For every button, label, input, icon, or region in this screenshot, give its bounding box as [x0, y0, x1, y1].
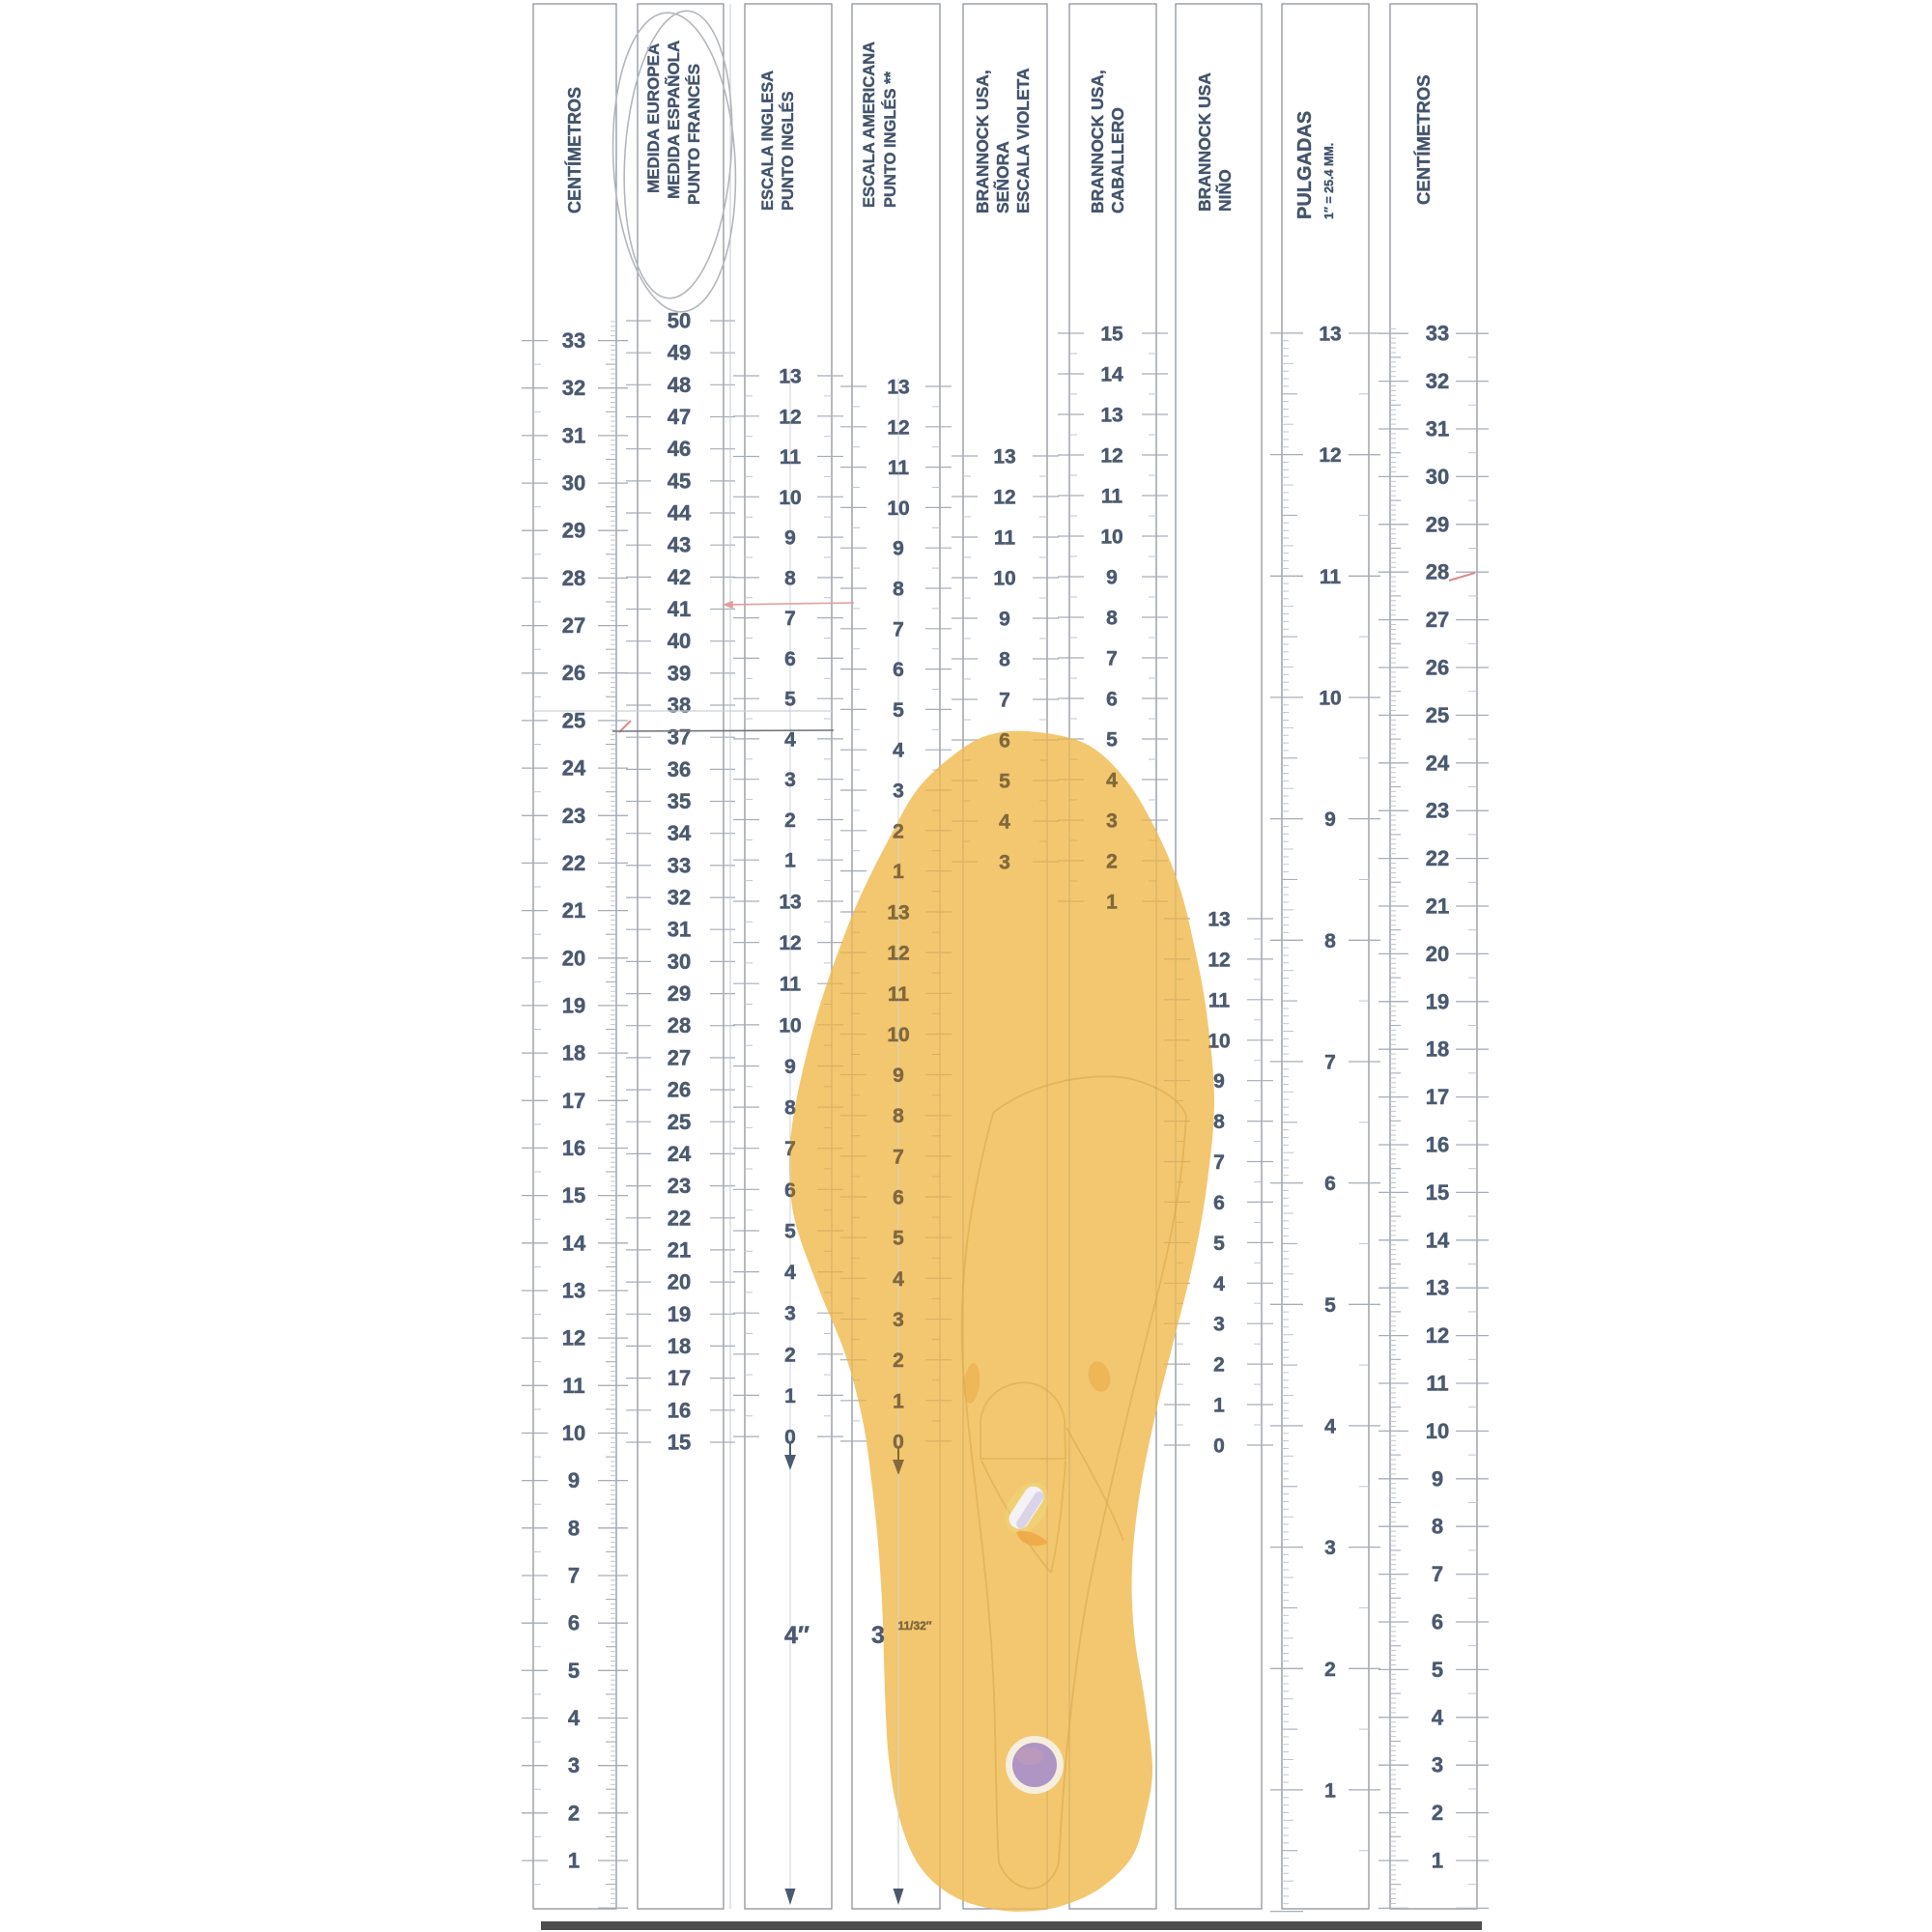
svg-text:31: 31: [1426, 417, 1449, 441]
svg-text:3: 3: [568, 1753, 580, 1777]
svg-text:3: 3: [1106, 810, 1118, 833]
svg-text:38: 38: [668, 694, 691, 718]
svg-text:NIÑO: NIÑO: [1214, 169, 1235, 212]
svg-text:25: 25: [562, 708, 585, 732]
svg-text:44: 44: [668, 501, 692, 526]
svg-text:12: 12: [887, 416, 909, 439]
svg-text:28: 28: [562, 566, 585, 590]
svg-text:ESCALA AMERICANA: ESCALA AMERICANA: [861, 42, 878, 208]
svg-text:32: 32: [1426, 369, 1449, 393]
svg-text:6: 6: [1324, 1173, 1336, 1195]
svg-text:16: 16: [668, 1398, 691, 1422]
svg-text:22: 22: [562, 851, 585, 875]
svg-text:20: 20: [562, 946, 585, 970]
svg-text:4: 4: [1432, 1705, 1444, 1729]
svg-text:7: 7: [1432, 1562, 1443, 1586]
svg-text:32: 32: [562, 376, 585, 400]
svg-text:8: 8: [1106, 608, 1118, 630]
svg-text:8: 8: [1432, 1515, 1443, 1539]
svg-text:13: 13: [779, 892, 801, 914]
svg-text:22: 22: [668, 1206, 691, 1230]
svg-text:4: 4: [784, 728, 796, 751]
svg-text:12: 12: [1319, 444, 1341, 467]
svg-text:4: 4: [1106, 770, 1118, 792]
svg-text:26: 26: [1426, 656, 1449, 680]
svg-text:6: 6: [893, 1187, 904, 1209]
svg-text:1: 1: [1432, 1849, 1443, 1873]
svg-text:30: 30: [1426, 465, 1449, 489]
svg-text:10: 10: [562, 1421, 585, 1445]
svg-text:28: 28: [668, 1013, 691, 1037]
svg-text:2: 2: [1324, 1659, 1336, 1681]
svg-text:CENTÍMETROS: CENTÍMETROS: [1413, 74, 1434, 205]
svg-text:25: 25: [1426, 703, 1449, 727]
svg-text:13: 13: [1426, 1276, 1449, 1300]
svg-text:9: 9: [1213, 1070, 1225, 1093]
svg-text:SEÑORA: SEÑORA: [992, 141, 1012, 213]
svg-text:45: 45: [668, 469, 691, 493]
svg-text:1: 1: [1213, 1395, 1225, 1417]
svg-text:10: 10: [887, 497, 909, 520]
svg-text:26: 26: [668, 1078, 691, 1102]
svg-text:1: 1: [784, 1385, 796, 1407]
svg-text:43: 43: [668, 533, 691, 557]
svg-text:BRANNOCK USA,: BRANNOCK USA,: [973, 70, 992, 213]
svg-text:14: 14: [1100, 364, 1123, 386]
svg-text:29: 29: [1426, 512, 1449, 536]
svg-text:4: 4: [893, 740, 904, 762]
svg-text:CENTÍMETROS: CENTÍMETROS: [564, 87, 584, 213]
svg-text:10: 10: [779, 1014, 801, 1037]
svg-text:12: 12: [1100, 445, 1122, 468]
svg-text:18: 18: [668, 1334, 691, 1358]
svg-text:14: 14: [562, 1231, 586, 1255]
svg-text:5: 5: [893, 699, 904, 722]
svg-text:15: 15: [562, 1183, 585, 1207]
svg-text:CABALLERO: CABALLERO: [1108, 107, 1127, 213]
svg-text:7: 7: [1213, 1151, 1225, 1174]
svg-text:24: 24: [668, 1142, 692, 1166]
svg-text:3: 3: [784, 769, 796, 791]
svg-text:19: 19: [1426, 989, 1449, 1013]
svg-text:10: 10: [1100, 526, 1122, 549]
svg-text:PUNTO INGLÉS **: PUNTO INGLÉS **: [881, 71, 899, 208]
svg-text:21: 21: [562, 898, 585, 923]
svg-text:10: 10: [1319, 688, 1341, 710]
svg-text:20: 20: [1426, 942, 1449, 966]
svg-text:13: 13: [1319, 324, 1341, 346]
svg-text:25: 25: [668, 1110, 691, 1134]
svg-text:31: 31: [668, 918, 691, 942]
svg-text:11: 11: [1426, 1372, 1448, 1396]
svg-text:8: 8: [999, 649, 1010, 671]
svg-text:26: 26: [562, 661, 585, 685]
svg-text:1: 1: [1324, 1779, 1336, 1802]
svg-text:23: 23: [668, 1174, 691, 1198]
svg-text:10: 10: [887, 1024, 909, 1046]
svg-text:5: 5: [893, 1228, 904, 1250]
svg-text:33: 33: [562, 328, 585, 353]
svg-text:29: 29: [668, 981, 691, 1006]
svg-text:49: 49: [668, 341, 691, 365]
svg-text:6: 6: [893, 659, 904, 681]
svg-text:5: 5: [1432, 1658, 1443, 1682]
svg-text:19: 19: [562, 993, 585, 1017]
svg-text:8: 8: [1213, 1111, 1225, 1133]
svg-text:3: 3: [1324, 1537, 1336, 1559]
svg-text:10: 10: [1207, 1030, 1230, 1052]
svg-text:47: 47: [668, 405, 691, 429]
svg-text:12: 12: [779, 406, 801, 428]
svg-text:MEDIDA ESPAÑOLA: MEDIDA ESPAÑOLA: [664, 41, 683, 199]
svg-text:11: 11: [888, 983, 910, 1006]
svg-text:13: 13: [887, 377, 909, 399]
svg-text:2: 2: [1213, 1354, 1225, 1377]
svg-text:11: 11: [780, 974, 802, 996]
svg-text:9: 9: [568, 1468, 580, 1492]
svg-text:9: 9: [1432, 1466, 1443, 1491]
svg-text:9: 9: [999, 609, 1010, 631]
svg-text:7: 7: [999, 690, 1010, 712]
svg-text:18: 18: [1426, 1037, 1449, 1062]
svg-text:10: 10: [993, 568, 1015, 590]
svg-text:2: 2: [784, 810, 796, 832]
svg-text:BRANNOCK USA,: BRANNOCK USA,: [1088, 70, 1107, 213]
svg-text:1: 1: [1106, 892, 1118, 914]
svg-text:11: 11: [780, 446, 802, 469]
svg-text:4: 4: [784, 1262, 796, 1284]
svg-text:9: 9: [1106, 567, 1118, 589]
svg-text:17: 17: [1426, 1085, 1449, 1109]
svg-text:7: 7: [784, 608, 796, 630]
svg-text:ESCALA INGLESA: ESCALA INGLESA: [759, 71, 777, 211]
svg-text:11/32″: 11/32″: [897, 1619, 931, 1633]
svg-text:9: 9: [893, 538, 904, 560]
svg-text:39: 39: [668, 661, 691, 685]
svg-text:4″: 4″: [784, 1622, 810, 1649]
svg-text:15: 15: [1426, 1180, 1449, 1205]
svg-text:33: 33: [1426, 322, 1449, 346]
svg-text:27: 27: [668, 1045, 691, 1069]
svg-text:30: 30: [562, 471, 585, 496]
svg-text:4: 4: [1213, 1273, 1225, 1295]
svg-text:8: 8: [568, 1516, 580, 1540]
svg-text:1″ = 25.4 MM.: 1″ = 25.4 MM.: [1322, 143, 1336, 219]
svg-text:32: 32: [668, 886, 691, 910]
svg-text:36: 36: [668, 757, 691, 781]
svg-text:6: 6: [568, 1611, 580, 1635]
svg-text:15: 15: [668, 1431, 691, 1455]
svg-text:16: 16: [1426, 1133, 1449, 1157]
svg-text:22: 22: [1426, 846, 1449, 870]
svg-text:7: 7: [568, 1564, 580, 1588]
svg-text:11: 11: [994, 527, 1016, 550]
svg-text:6: 6: [1432, 1610, 1443, 1634]
svg-text:ESCALA VIOLETA: ESCALA VIOLETA: [1013, 68, 1033, 213]
svg-text:5: 5: [999, 771, 1010, 793]
svg-text:13: 13: [779, 366, 801, 388]
svg-text:35: 35: [668, 789, 691, 813]
svg-text:3: 3: [999, 852, 1010, 874]
svg-text:5: 5: [784, 1221, 796, 1243]
svg-text:PULGADAS: PULGADAS: [1294, 111, 1316, 219]
svg-text:1: 1: [568, 1849, 580, 1873]
svg-text:13: 13: [1207, 909, 1230, 931]
svg-text:21: 21: [1426, 895, 1449, 919]
svg-text:MEDIDA EUROPEA: MEDIDA EUROPEA: [644, 43, 663, 193]
svg-text:12: 12: [1426, 1323, 1449, 1348]
svg-text:2: 2: [893, 1350, 904, 1372]
svg-text:5: 5: [568, 1659, 580, 1683]
svg-text:3: 3: [1432, 1753, 1443, 1777]
svg-text:3: 3: [893, 781, 904, 803]
svg-text:1: 1: [784, 850, 796, 872]
svg-text:37: 37: [668, 725, 691, 750]
svg-text:24: 24: [1426, 751, 1450, 775]
svg-text:24: 24: [562, 756, 586, 781]
svg-text:BRANNOCK USA: BRANNOCK USA: [1195, 72, 1214, 212]
svg-text:6: 6: [1213, 1192, 1225, 1214]
svg-text:33: 33: [668, 853, 691, 877]
svg-text:17: 17: [668, 1366, 691, 1390]
svg-text:9: 9: [784, 527, 796, 550]
svg-text:12: 12: [779, 932, 801, 954]
svg-text:9: 9: [784, 1056, 796, 1078]
svg-text:12: 12: [887, 943, 909, 965]
svg-text:12: 12: [993, 487, 1015, 509]
svg-text:7: 7: [1324, 1052, 1336, 1074]
svg-text:11: 11: [1320, 566, 1342, 588]
svg-text:8: 8: [893, 579, 904, 601]
svg-text:23: 23: [1426, 799, 1449, 823]
svg-text:7: 7: [1106, 648, 1118, 670]
svg-text:12: 12: [562, 1326, 585, 1350]
svg-text:15: 15: [1100, 324, 1123, 346]
svg-text:5: 5: [1324, 1294, 1336, 1317]
svg-text:0: 0: [1213, 1435, 1225, 1458]
svg-text:29: 29: [562, 519, 585, 543]
svg-text:4: 4: [999, 811, 1010, 834]
svg-text:6: 6: [1106, 689, 1118, 711]
svg-text:48: 48: [668, 373, 691, 397]
svg-text:18: 18: [562, 1041, 585, 1065]
svg-text:1: 1: [893, 1390, 904, 1412]
svg-text:5: 5: [784, 689, 796, 711]
svg-text:13: 13: [562, 1279, 585, 1303]
svg-text:3: 3: [893, 1309, 904, 1331]
svg-text:11: 11: [562, 1374, 584, 1398]
svg-text:34: 34: [668, 821, 692, 845]
svg-text:12: 12: [1207, 949, 1230, 971]
svg-text:13: 13: [993, 446, 1015, 469]
svg-text:41: 41: [668, 597, 691, 621]
svg-text:3: 3: [871, 1622, 885, 1649]
svg-text:7: 7: [893, 1146, 904, 1168]
svg-text:9: 9: [1324, 809, 1336, 831]
svg-text:4: 4: [1324, 1415, 1336, 1437]
svg-text:2: 2: [1106, 851, 1118, 873]
svg-text:27: 27: [1426, 608, 1449, 632]
svg-text:20: 20: [668, 1270, 691, 1294]
svg-text:31: 31: [562, 423, 585, 447]
svg-text:16: 16: [562, 1136, 585, 1160]
svg-text:27: 27: [562, 613, 585, 638]
svg-text:5: 5: [1213, 1233, 1225, 1255]
svg-text:PUNTO INGLÉS: PUNTO INGLÉS: [779, 92, 797, 211]
svg-text:28: 28: [1426, 560, 1449, 584]
svg-text:6: 6: [784, 648, 796, 670]
svg-text:1: 1: [893, 861, 904, 883]
svg-text:11: 11: [1208, 989, 1231, 1011]
svg-text:6: 6: [999, 730, 1010, 753]
svg-text:8: 8: [1324, 930, 1336, 952]
svg-text:PUNTO FRANCÉS: PUNTO FRANCÉS: [685, 64, 703, 205]
svg-text:30: 30: [668, 950, 691, 974]
svg-text:11: 11: [1101, 486, 1123, 508]
svg-text:23: 23: [562, 804, 585, 828]
svg-text:5: 5: [1106, 729, 1118, 752]
svg-text:7: 7: [893, 618, 904, 640]
svg-text:8: 8: [784, 567, 796, 589]
svg-text:21: 21: [668, 1237, 691, 1262]
svg-text:19: 19: [668, 1302, 691, 1326]
svg-text:11: 11: [888, 457, 910, 479]
svg-text:2: 2: [784, 1344, 796, 1366]
svg-text:4: 4: [893, 1268, 904, 1291]
svg-text:2: 2: [1432, 1801, 1443, 1825]
svg-text:40: 40: [668, 629, 691, 653]
svg-text:13: 13: [887, 902, 909, 924]
svg-text:10: 10: [779, 487, 801, 509]
svg-text:8: 8: [893, 1105, 904, 1127]
svg-text:42: 42: [668, 565, 691, 589]
svg-text:14: 14: [1426, 1228, 1450, 1252]
svg-text:3: 3: [1213, 1314, 1225, 1336]
svg-text:13: 13: [1100, 405, 1122, 427]
svg-text:3: 3: [784, 1303, 796, 1325]
svg-text:9: 9: [893, 1065, 904, 1087]
svg-text:17: 17: [562, 1089, 585, 1113]
svg-text:46: 46: [668, 437, 691, 461]
svg-text:10: 10: [1426, 1419, 1449, 1443]
svg-text:2: 2: [568, 1801, 580, 1825]
svg-text:4: 4: [568, 1706, 581, 1730]
